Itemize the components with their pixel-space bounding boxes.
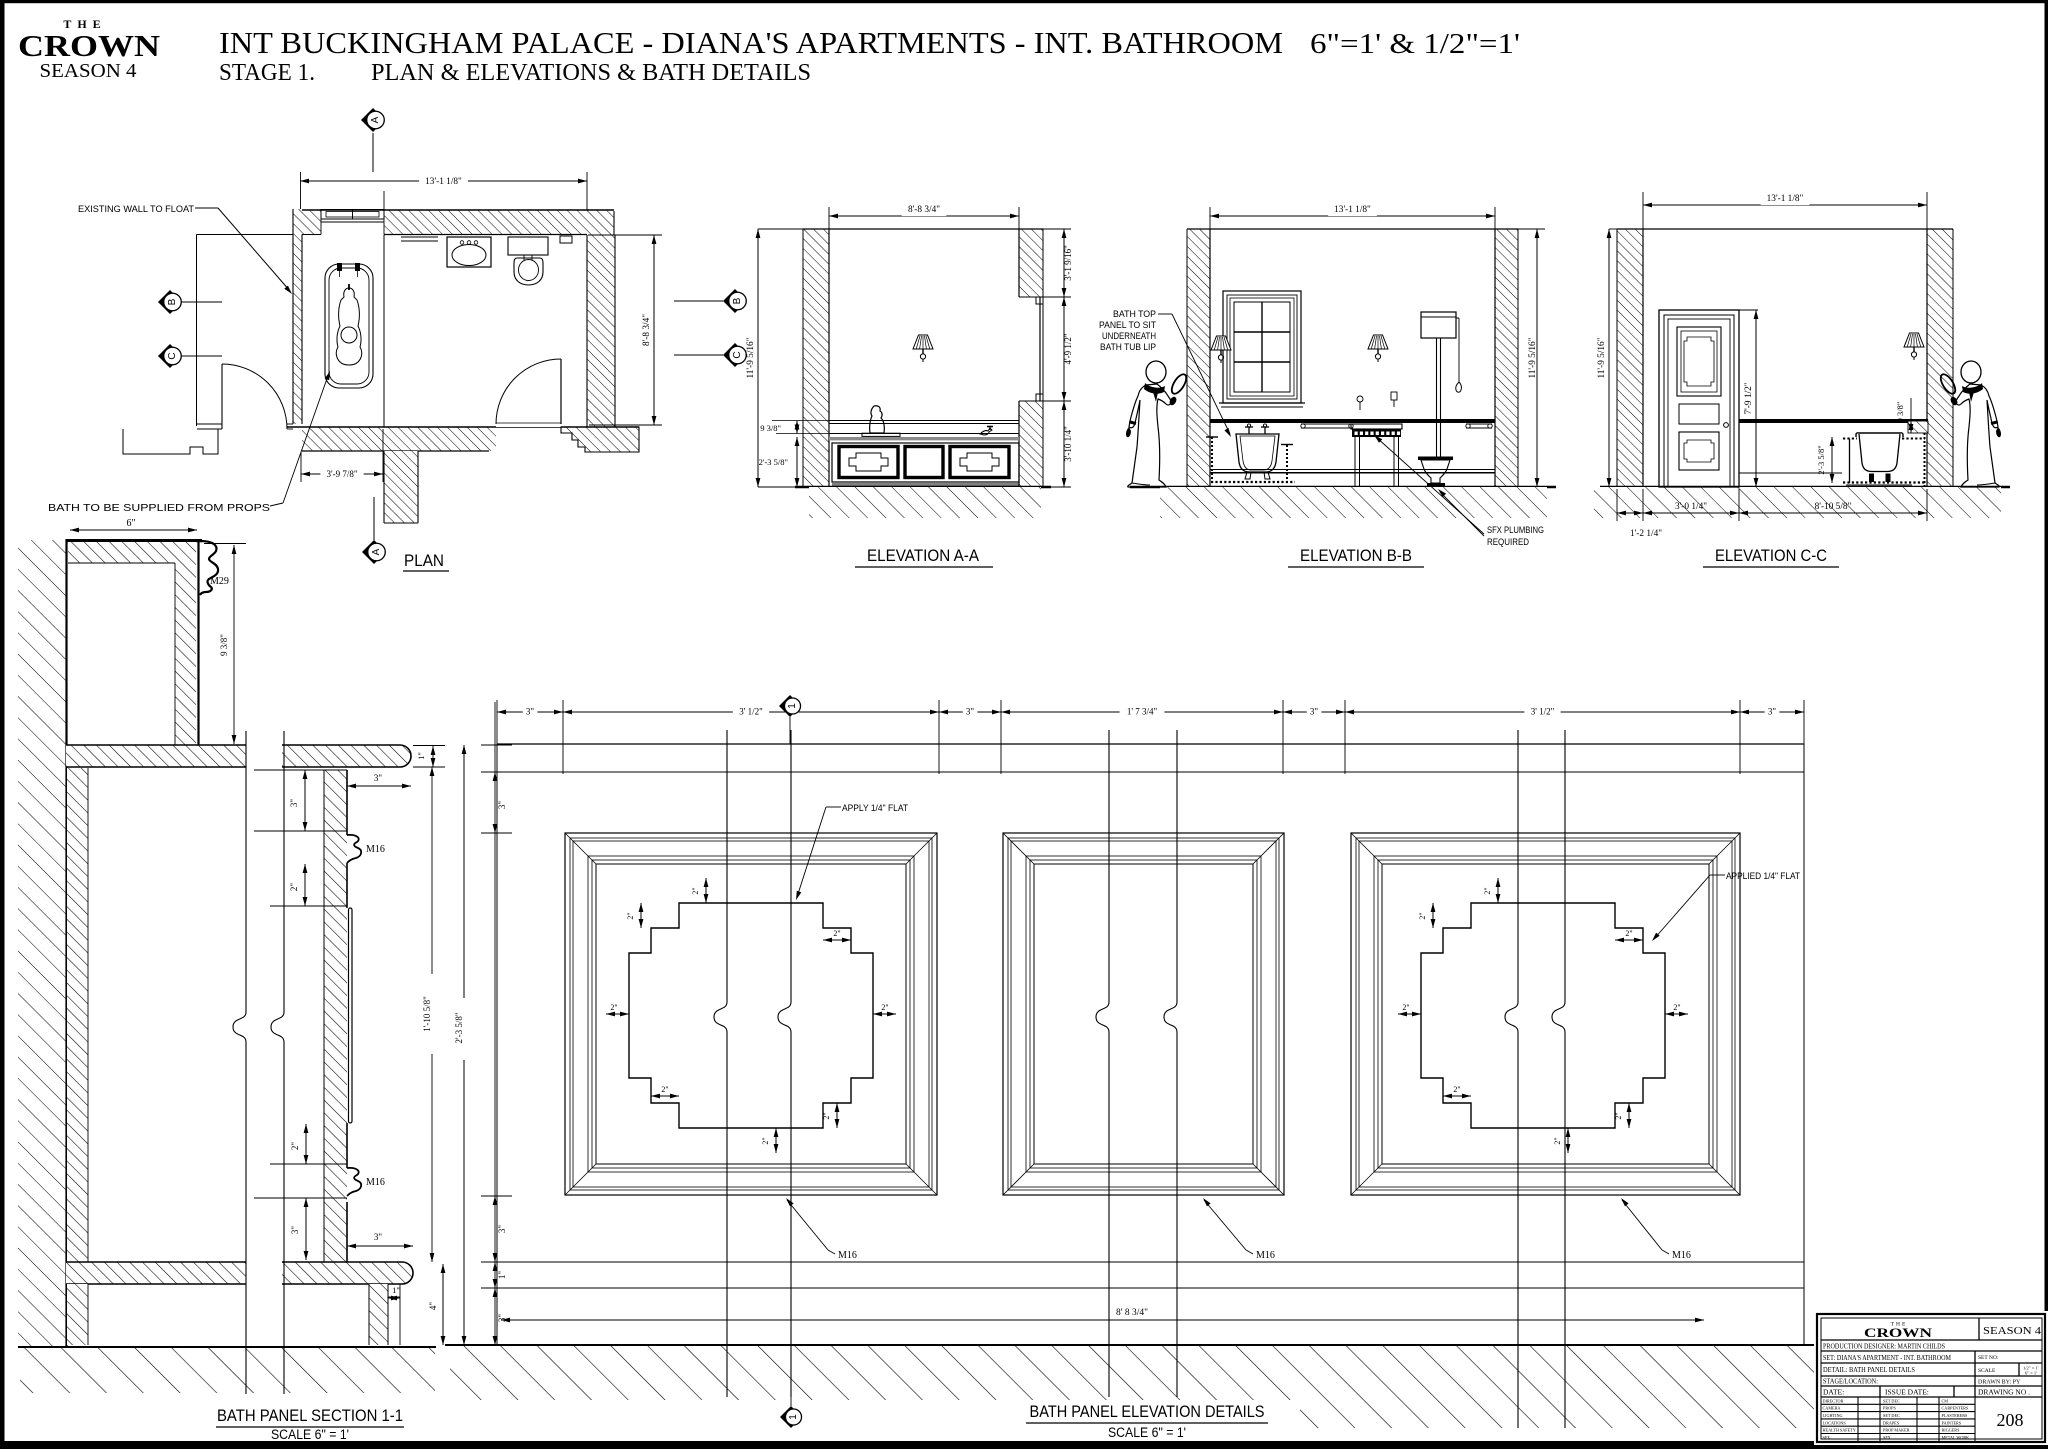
svg-text:2": 2" <box>1625 929 1632 938</box>
svg-text:1'-2 1/4": 1'-2 1/4" <box>1630 529 1662 539</box>
svg-text:3": 3" <box>526 707 535 717</box>
svg-text:CROWN: CROWN <box>18 28 160 63</box>
svg-text:CM: CM <box>1942 1398 1949 1403</box>
svg-text:9 3/8": 9 3/8" <box>219 634 229 656</box>
svg-text:UNDERNEATH: UNDERNEATH <box>1102 331 1156 341</box>
svg-text:1": 1" <box>416 752 426 760</box>
svg-text:208: 208 <box>1997 1410 2024 1430</box>
svg-text:3'-1 9/16": 3'-1 9/16" <box>1063 245 1073 281</box>
svg-text:DRAPES: DRAPES <box>1883 1420 1900 1425</box>
svg-text:11'-9 5/16": 11'-9 5/16" <box>1597 337 1607 378</box>
svg-text:M16: M16 <box>1672 1250 1691 1261</box>
svg-text:2": 2" <box>626 912 635 919</box>
svg-text:3": 3" <box>497 801 507 810</box>
svg-text:DATE:: DATE: <box>1823 1388 1844 1397</box>
svg-text:PLAN & ELEVATIONS & BATH DETAI: PLAN & ELEVATIONS & BATH DETAILS <box>371 60 811 86</box>
svg-text:CROWN: CROWN <box>1864 1325 1933 1340</box>
svg-text:SFX PLUMBING: SFX PLUMBING <box>1487 525 1544 535</box>
svg-text:M16: M16 <box>366 844 385 855</box>
svg-text:3": 3" <box>497 1225 507 1234</box>
svg-text:SEASON 4: SEASON 4 <box>40 60 137 82</box>
svg-text:3": 3" <box>374 773 383 783</box>
svg-text:4'-9 1/2": 4'-9 1/2" <box>1063 333 1073 364</box>
svg-text:CARPENTERS: CARPENTERS <box>1942 1406 1969 1411</box>
svg-text:REQUIRED: REQUIRED <box>1487 537 1529 547</box>
svg-text:ISSUE DATE:: ISSUE DATE: <box>1885 1388 1929 1397</box>
svg-text:13'-1 1/8": 13'-1 1/8" <box>1767 194 1804 204</box>
svg-text:PANEL TO SIT: PANEL TO SIT <box>1099 320 1156 330</box>
svg-text:2": 2" <box>1614 1112 1623 1119</box>
svg-text:2": 2" <box>691 887 700 894</box>
svg-text:3": 3" <box>1768 707 1777 717</box>
svg-text:A: A <box>370 116 381 123</box>
svg-text:DRAWING NO .: DRAWING NO . <box>1978 1389 2030 1397</box>
svg-text:PROPS: PROPS <box>1883 1406 1896 1411</box>
svg-text:CAMERA: CAMERA <box>1823 1406 1841 1411</box>
svg-text:SET: DIANA'S APARTMENT - I: SET: DIANA'S APARTMENT - INT. BATHROOM <box>1823 1353 1951 1362</box>
svg-text:3'-9 7/8": 3'-9 7/8" <box>326 469 357 479</box>
svg-text:DETAIL: BATH PANEL DETAILS: DETAIL: BATH PANEL DETAILS <box>1823 1365 1915 1374</box>
svg-text:ELEVATION C-C: ELEVATION C-C <box>1715 546 1827 565</box>
svg-text:2": 2" <box>289 883 299 892</box>
svg-text:2": 2" <box>1453 1085 1460 1094</box>
svg-text:SCALE 6" = 1': SCALE 6" = 1' <box>271 1427 349 1442</box>
svg-text:DRAWN BY: PY: DRAWN BY: PY <box>1978 1380 2021 1386</box>
svg-text:SET NO:: SET NO: <box>1978 1355 1999 1361</box>
svg-text:3": 3" <box>289 799 299 808</box>
svg-text:SEASON 4: SEASON 4 <box>1983 1326 2042 1337</box>
svg-text:PLAN: PLAN <box>404 551 444 570</box>
svg-text:2": 2" <box>1553 1137 1562 1144</box>
svg-text:M16: M16 <box>1256 1250 1275 1261</box>
svg-text:ELEVATION B-B: ELEVATION B-B <box>1300 546 1412 565</box>
svg-text:INT BUCKINGHAM PALACE - DIANA': INT BUCKINGHAM PALACE - DIANA'S APARTMEN… <box>219 25 1283 60</box>
svg-text:2'-3 5/8": 2'-3 5/8" <box>454 1012 464 1043</box>
svg-text:13'-1 1/8": 13'-1 1/8" <box>1334 205 1371 215</box>
svg-text:3'-0 1/4": 3'-0 1/4" <box>1675 502 1707 512</box>
svg-text:PRODUCTION DESIGNER: MARTIN: PRODUCTION DESIGNER: MARTIN CHILDS <box>1823 1342 1945 1351</box>
svg-text:8'-8 3/4": 8'-8 3/4" <box>642 314 652 346</box>
svg-text:C: C <box>167 352 178 359</box>
svg-text:B: B <box>167 298 178 305</box>
svg-text:2": 2" <box>661 1085 668 1094</box>
svg-text:1' 7 3/4": 1' 7 3/4" <box>1127 707 1158 717</box>
svg-text:2'-3 5/8": 2'-3 5/8" <box>759 457 788 467</box>
svg-text:SCALE: SCALE <box>1978 1368 1996 1374</box>
svg-text:BATH PANEL ELEVATION DETAILS: BATH PANEL ELEVATION DETAILS <box>1030 1402 1265 1421</box>
svg-text:LOCATIONS: LOCATIONS <box>1823 1420 1847 1425</box>
svg-text:PROP MAKER: PROP MAKER <box>1883 1428 1910 1433</box>
svg-text:3": 3" <box>1310 707 1319 717</box>
svg-text:1: 1 <box>787 703 798 709</box>
svg-text:BATH TUB LIP: BATH TUB LIP <box>1100 342 1156 352</box>
svg-text:SET DEC: SET DEC <box>1883 1398 1900 1403</box>
svg-text:2": 2" <box>290 1142 300 1151</box>
svg-text:SFX: SFX <box>1883 1435 1891 1440</box>
svg-text:APPLIED 1/4" FLAT: APPLIED 1/4" FLAT <box>1726 871 1800 881</box>
svg-text:1": 1" <box>497 1271 507 1280</box>
svg-text:DIRECTOR: DIRECTOR <box>1823 1398 1844 1403</box>
svg-text:3' 1/2": 3' 1/2" <box>739 707 763 717</box>
svg-text:1: 1 <box>788 1414 799 1420</box>
svg-text:3'-10 1/4": 3'-10 1/4" <box>1063 426 1073 462</box>
svg-text:LIGHTING: LIGHTING <box>1823 1413 1843 1418</box>
svg-text:3": 3" <box>290 1226 300 1235</box>
svg-text:M29: M29 <box>210 576 229 587</box>
svg-text:8'-10 5/8": 8'-10 5/8" <box>1815 502 1852 512</box>
svg-text:BATH TOP: BATH TOP <box>1113 309 1156 319</box>
svg-text:M16: M16 <box>838 1250 857 1261</box>
svg-text:3' 1/2": 3' 1/2" <box>1531 707 1555 717</box>
svg-text:STAGE/LOCATION:: STAGE/LOCATION: <box>1823 1377 1878 1386</box>
svg-text:A: A <box>371 548 382 555</box>
svg-text:2'-3 5/8": 2'-3 5/8" <box>1816 445 1826 474</box>
svg-text:1": 1" <box>392 1285 400 1295</box>
svg-text:SET DEC: SET DEC <box>1883 1413 1900 1418</box>
svg-text:RIGGERS: RIGGERS <box>1942 1428 1961 1433</box>
svg-text:B: B <box>732 297 743 304</box>
svg-text:METAL WORK: METAL WORK <box>1942 1435 1970 1440</box>
svg-text:APPLY 1/4" FLAT: APPLY 1/4" FLAT <box>842 803 908 813</box>
svg-text:6": 6" <box>126 518 135 529</box>
svg-text:SFX: SFX <box>1823 1435 1831 1440</box>
svg-text:BATH TO BE SUPPLIED FROM PROPS: BATH TO BE SUPPLIED FROM PROPS <box>48 502 270 514</box>
svg-text:13'-1 1/8": 13'-1 1/8" <box>425 177 462 187</box>
svg-text:ELEVATION A-A: ELEVATION A-A <box>867 546 980 565</box>
svg-text:1'-10 5/8": 1'-10 5/8" <box>422 996 432 1032</box>
svg-text:SCALE 6" = 1': SCALE 6" = 1' <box>1108 1425 1186 1440</box>
svg-text:2": 2" <box>833 929 840 938</box>
svg-text:11'-9 5/16": 11'-9 5/16" <box>746 337 756 378</box>
svg-text:2": 2" <box>1483 887 1492 894</box>
svg-text:8'-8 3/4": 8'-8 3/4" <box>908 205 940 215</box>
svg-text:2": 2" <box>610 1003 617 1012</box>
svg-text:PAINTERS: PAINTERS <box>1942 1420 1962 1425</box>
svg-text:1/2" = 1': 1/2" = 1' <box>2023 1366 2039 1371</box>
svg-text:C: C <box>732 351 743 358</box>
svg-text:8' 8 3/4": 8' 8 3/4" <box>1116 1308 1148 1318</box>
svg-text:2": 2" <box>761 1137 770 1144</box>
svg-text:11'-9 5/16": 11'-9 5/16" <box>1528 337 1538 378</box>
svg-text:9 3/8": 9 3/8" <box>1895 402 1905 423</box>
svg-text:3": 3" <box>374 1232 383 1242</box>
svg-text:2": 2" <box>1673 1003 1680 1012</box>
svg-text:BATH PANEL SECTION 1-1: BATH PANEL SECTION 1-1 <box>217 1406 403 1425</box>
svg-text:3": 3" <box>966 707 975 717</box>
svg-text:9 3/8": 9 3/8" <box>760 423 781 433</box>
svg-text:2": 2" <box>822 1112 831 1119</box>
svg-text:HEALTH SAFETY: HEALTH SAFETY <box>1823 1428 1856 1433</box>
svg-text:4": 4" <box>428 1302 438 1311</box>
svg-text:6" = 1': 6" = 1' <box>2025 1371 2037 1376</box>
svg-text:PLASTERERS: PLASTERERS <box>1942 1413 1968 1418</box>
svg-text:M16: M16 <box>366 1177 385 1188</box>
svg-text:2": 2" <box>1418 912 1427 919</box>
svg-text:STAGE 1.: STAGE 1. <box>219 60 315 86</box>
svg-text:6"=1' & 1/2"=1': 6"=1' & 1/2"=1' <box>1310 28 1520 60</box>
svg-text:EXISTING WALL TO FLOAT: EXISTING WALL TO FLOAT <box>78 204 194 214</box>
svg-text:2": 2" <box>1402 1003 1409 1012</box>
svg-text:7'-9 1/2": 7'-9 1/2" <box>1744 382 1754 414</box>
svg-text:2": 2" <box>881 1003 888 1012</box>
